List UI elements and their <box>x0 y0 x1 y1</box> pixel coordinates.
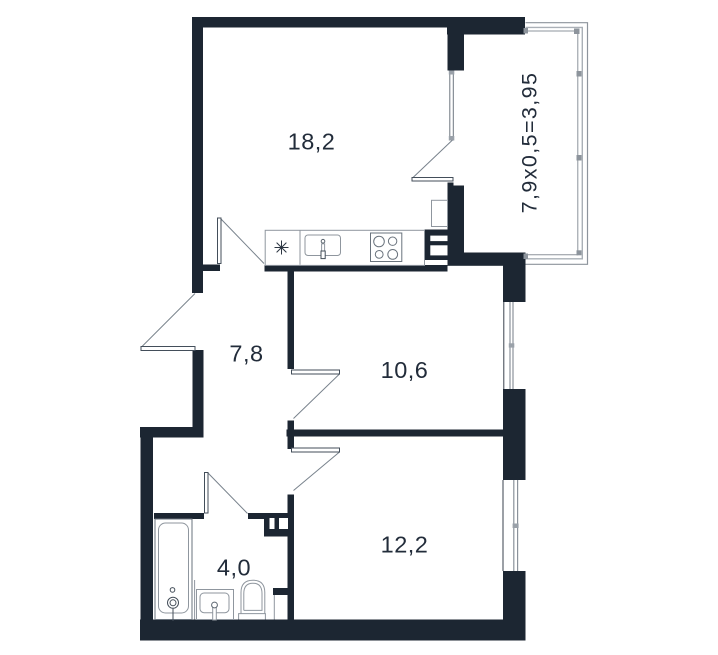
svg-text:7,9х0,5=3,95: 7,9х0,5=3,95 <box>518 72 542 214</box>
svg-text:18,2: 18,2 <box>288 129 336 155</box>
svg-text:4,0: 4,0 <box>217 555 251 581</box>
svg-text:10,6: 10,6 <box>381 357 429 383</box>
svg-text:12,2: 12,2 <box>381 532 429 558</box>
svg-text:7,8: 7,8 <box>229 341 263 367</box>
